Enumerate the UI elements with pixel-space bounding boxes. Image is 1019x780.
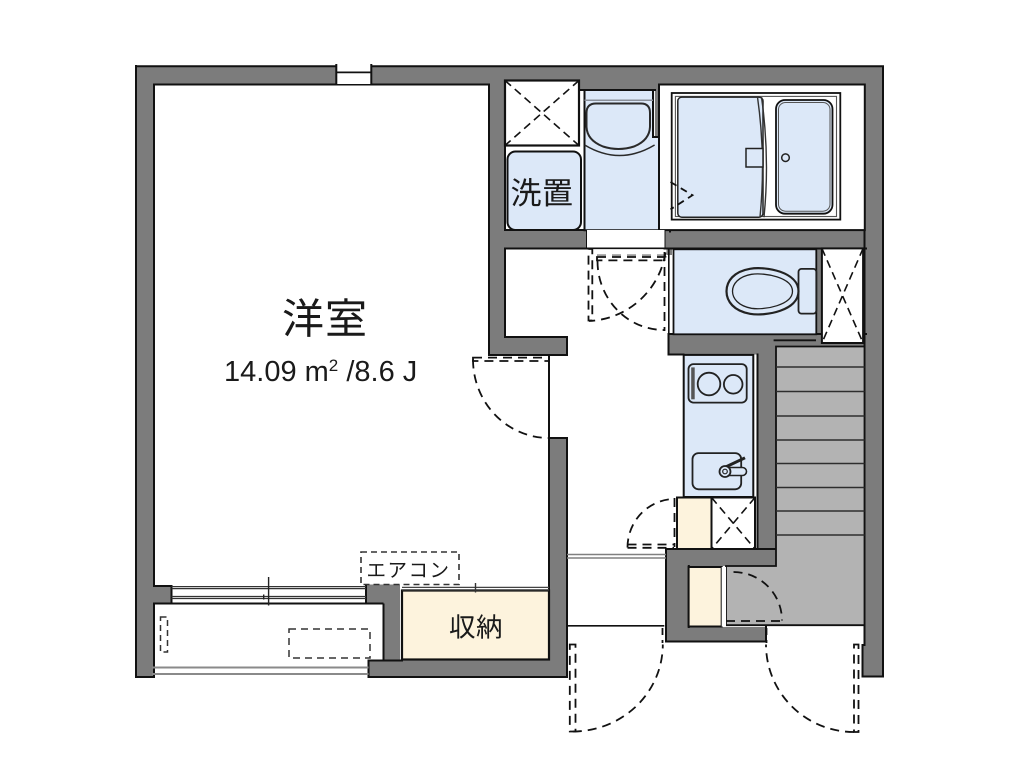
svg-text:14.09 m2 /8.6 J: 14.09 m2 /8.6 J — [224, 356, 417, 388]
